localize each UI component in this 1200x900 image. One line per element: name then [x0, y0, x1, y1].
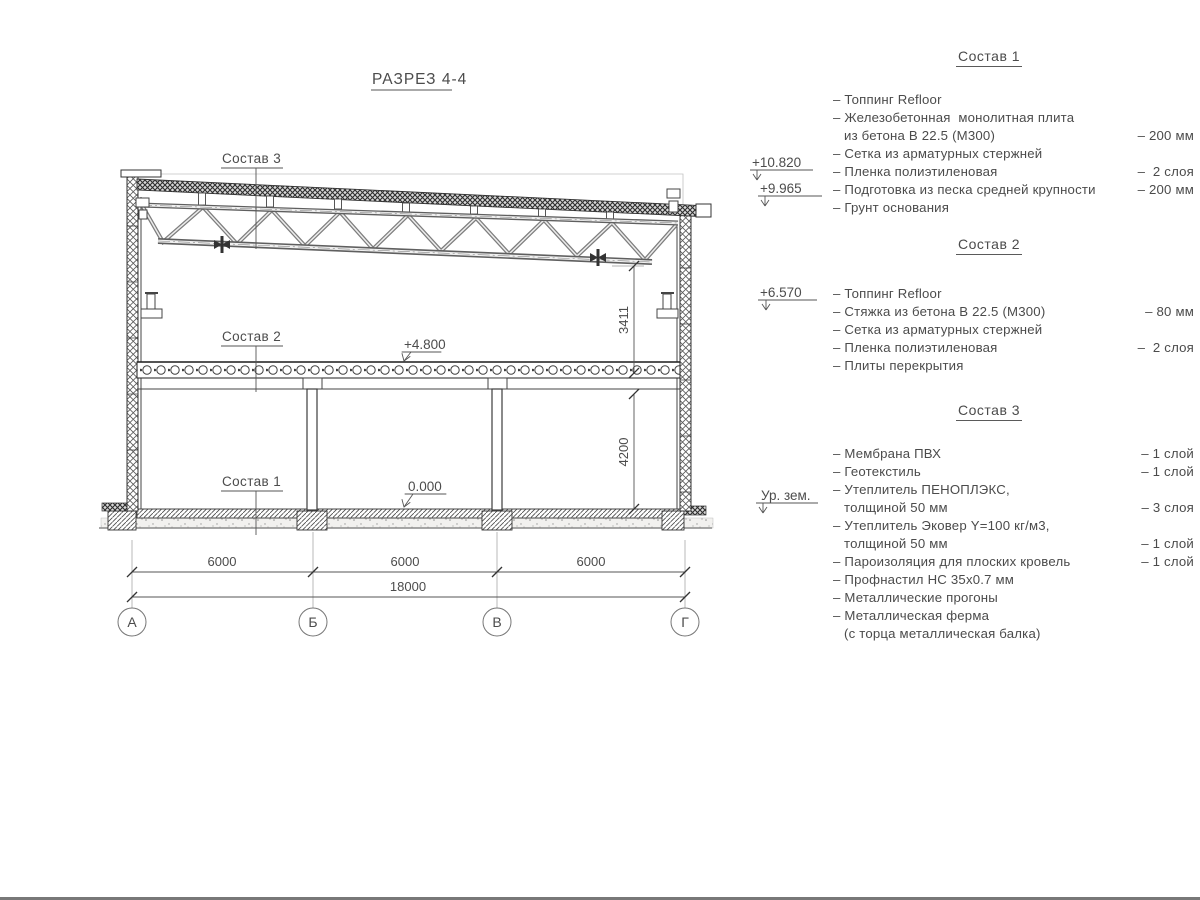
elev-parapet: +10.820: [752, 155, 801, 170]
elevation-marks: +10.820 +9.965 +6.570 Ур. зем.: [750, 155, 822, 513]
material-item-text: – Пленка полиэтиленовая: [833, 339, 998, 357]
material-item-value: – 2 слоя: [1132, 339, 1194, 357]
material-item-text: – Топпинг Refloor: [833, 91, 942, 109]
material-item-text: – Геотекстиль: [833, 463, 921, 481]
column-capital-b: [303, 378, 322, 389]
drawing-title-group: РАЗРЕЗ 4-4: [371, 71, 467, 90]
callout-sostav3: Состав 3: [222, 151, 281, 166]
material-item-text: (с торца металлическая балка): [844, 625, 1041, 643]
material-item-text: толщиной 50 мм: [844, 499, 948, 517]
dim-floor-height: 4200: [616, 438, 631, 467]
dim-truss-height: 3411: [616, 306, 631, 334]
elev-ground: Ур. зем.: [761, 488, 811, 503]
axis-v: В: [492, 614, 501, 630]
dim-bay3: 6000: [577, 554, 606, 569]
material-item-text: – Мембрана ПВХ: [833, 445, 941, 463]
material-item-text: – Сетка из арматурных стержней: [833, 321, 1042, 339]
floor-slab: [137, 509, 680, 518]
material-item: – Металлические прогоны: [833, 589, 1194, 607]
material-item-text: – Сетка из арматурных стержней: [833, 145, 1042, 163]
column-v: [492, 389, 502, 510]
material-item: – Металлическая ферма: [833, 607, 1194, 625]
dim-bay2: 6000: [391, 554, 420, 569]
material-item-text: – Металлическая ферма: [833, 607, 989, 625]
material-item: – Геотекстиль– 1 слой: [833, 463, 1194, 481]
hollow-core-slab: [137, 362, 680, 378]
elev-bracket: +6.570: [760, 285, 802, 300]
horizontal-dimensions: 6000 6000 6000 18000: [127, 532, 690, 608]
material-item-text: из бетона В 22.5 (М300): [844, 127, 995, 145]
material-item: – Пленка полиэтиленовая– 2 слоя: [833, 163, 1194, 181]
apron-left: [102, 503, 127, 511]
material-item: – Сетка из арматурных стержней: [833, 145, 1194, 163]
footing-v: [482, 511, 512, 530]
material-item-text: – Утеплитель Эковер Y=100 кг/м3,: [833, 517, 1050, 535]
section-drawing: 6000 6000 6000 18000 А Б В Г 3411 4200 С…: [0, 0, 840, 700]
material-item-value: – 80 мм: [1139, 303, 1194, 321]
right-wall: [680, 214, 691, 511]
bottom-chord: [158, 241, 652, 262]
material-item: – Пленка полиэтиленовая– 2 слоя: [833, 339, 1194, 357]
material-item-text: – Металлические прогоны: [833, 589, 998, 607]
footing-g: [662, 511, 684, 530]
material-item-text: – Пленка полиэтиленовая: [833, 163, 998, 181]
material-item: – Утеплитель Эковер Y=100 кг/м3,: [833, 517, 1194, 535]
roof-end-cap: [696, 204, 711, 217]
material-item-text: – Железобетонная монолитная плита: [833, 109, 1074, 127]
material-item-text: – Пароизоляция для плоских кровель: [833, 553, 1070, 571]
material-item-value: – 1 слой: [1135, 535, 1194, 553]
material-item-text: – Грунт основания: [833, 199, 949, 217]
material-item: – Сетка из арматурных стержней: [833, 321, 1194, 339]
callout-sostav1: Состав 1: [222, 474, 281, 489]
material-item: из бетона В 22.5 (М300)– 200 мм: [833, 127, 1194, 145]
footing-b: [297, 511, 327, 530]
dim-bay1: 6000: [208, 554, 237, 569]
materials-section-2: Состав 2– Топпинг Refloor– Стяжка из бет…: [833, 236, 1194, 375]
column-b: [307, 389, 317, 510]
material-item: – Подготовка из песка средней крупности–…: [833, 181, 1194, 199]
material-item: – Профнастил НС 35х0.7 мм: [833, 571, 1194, 589]
material-item: – Стяжка из бетона В 22.5 (М300)– 80 мм: [833, 303, 1194, 321]
material-item-value: – 2 слоя: [1132, 163, 1194, 181]
dim-total: 18000: [390, 579, 426, 594]
material-item: толщиной 50 мм– 1 слой: [833, 535, 1194, 553]
footing-a: [108, 511, 136, 530]
axis-a: А: [127, 614, 137, 630]
foundation: [99, 503, 713, 530]
roof-deck: [137, 179, 710, 217]
material-item: – Топпинг Refloor: [833, 91, 1194, 109]
material-item-text: – Утеплитель ПЕНОПЛЭКС,: [833, 481, 1010, 499]
material-item-value: – 1 слой: [1135, 463, 1194, 481]
left-wall: [127, 170, 138, 511]
material-item: – Пароизоляция для плоских кровель– 1 сл…: [833, 553, 1194, 571]
section-heading: Состав 3: [956, 402, 1022, 421]
elev-roof: +9.965: [760, 181, 802, 196]
section-heading: Состав 1: [956, 48, 1022, 67]
axis-g: Г: [681, 614, 689, 630]
material-item-text: – Топпинг Refloor: [833, 285, 942, 303]
material-item: – Грунт основания: [833, 199, 1194, 217]
materials-panel: Состав 1– Топпинг Refloor– Железобетонна…: [833, 48, 1194, 643]
material-item: – Железобетонная монолитная плита: [833, 109, 1194, 127]
material-item-value: – 3 слоя: [1135, 499, 1194, 517]
material-item-value: – 200 мм: [1132, 181, 1194, 199]
material-item-value: – 1 слой: [1135, 553, 1194, 571]
material-item: – Топпинг Refloor: [833, 285, 1194, 303]
axis-b: Б: [308, 614, 317, 630]
materials-section-3: Состав 3– Мембрана ПВХ– 1 слой– Геотекст…: [833, 402, 1194, 643]
material-item: – Мембрана ПВХ– 1 слой: [833, 445, 1194, 463]
section-heading: Состав 2: [956, 236, 1022, 255]
material-item-value: – 1 слой: [1135, 445, 1194, 463]
material-item: (с торца металлическая балка): [833, 625, 1194, 643]
level-4800: +4.800: [404, 337, 446, 352]
material-item-text: – Плиты перекрытия: [833, 357, 964, 375]
material-item: толщиной 50 мм– 3 слоя: [833, 499, 1194, 517]
column-capital-v: [488, 378, 507, 389]
level-0000: 0.000: [408, 479, 442, 494]
crane-brackets: [141, 293, 678, 318]
material-item: – Плиты перекрытия: [833, 357, 1194, 375]
roof: [121, 170, 711, 217]
drawing-title: РАЗРЕЗ 4-4: [372, 71, 467, 88]
parapet-cap: [121, 170, 161, 177]
materials-section-1: Состав 1– Топпинг Refloor– Железобетонна…: [833, 48, 1194, 217]
material-item-value: – 200 мм: [1132, 127, 1194, 145]
material-item-text: – Стяжка из бетона В 22.5 (М300): [833, 303, 1045, 321]
material-item-text: – Профнастил НС 35х0.7 мм: [833, 571, 1014, 589]
material-item-text: – Подготовка из песка средней крупности: [833, 181, 1096, 199]
callout-sostav2: Состав 2: [222, 329, 281, 344]
material-item: – Утеплитель ПЕНОПЛЭКС,: [833, 481, 1194, 499]
material-item-text: толщиной 50 мм: [844, 535, 948, 553]
sheet: { "title": "РАЗРЕЗ 4-4", "drawing": { "c…: [0, 0, 1200, 900]
vertical-dimensions: 3411 4200: [612, 261, 644, 514]
axis-bubbles: А Б В Г: [118, 608, 699, 636]
